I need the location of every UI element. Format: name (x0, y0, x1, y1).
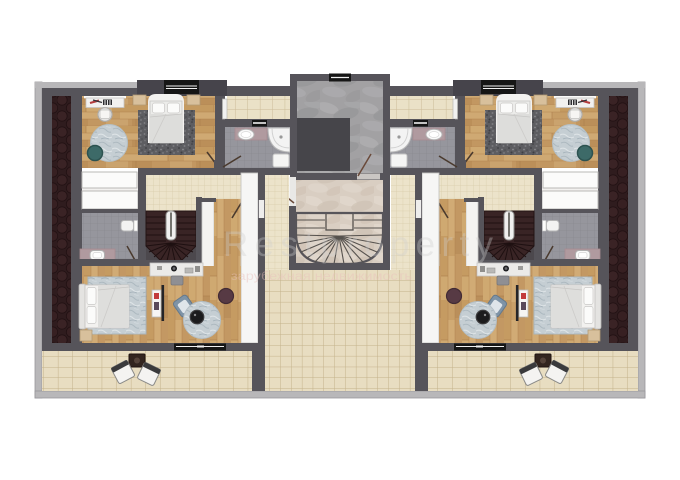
svg-text:зарубежная недвижимость: зарубежная недвижимость (231, 271, 412, 283)
